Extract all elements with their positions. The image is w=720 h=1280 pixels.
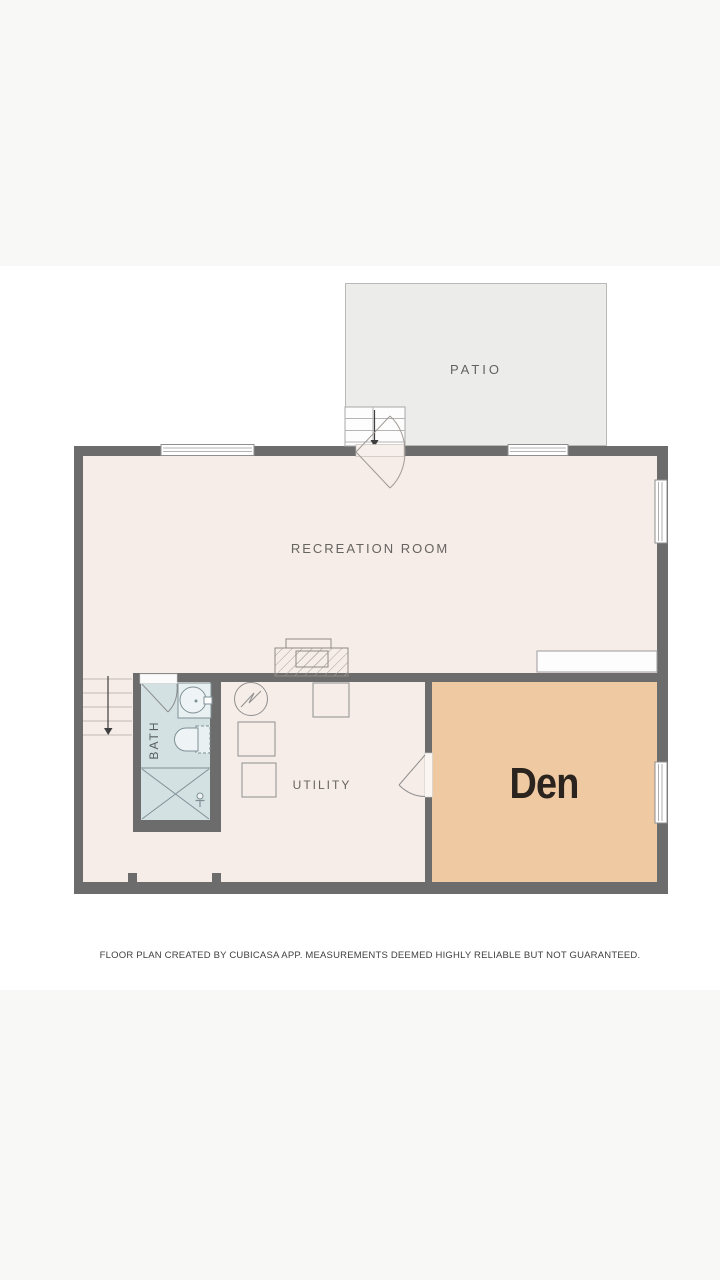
wall-stub (128, 873, 137, 883)
appliance-icon (238, 722, 275, 756)
toilet-icon (175, 726, 210, 753)
shower-valve-icon (196, 793, 205, 807)
exterior-stairs-icon (345, 407, 405, 447)
fireplace-icon (275, 639, 348, 676)
water-heater-icon (235, 683, 268, 716)
shower-icon (141, 768, 210, 819)
window-icon (655, 480, 667, 543)
patio-label: PATIO (345, 362, 607, 377)
recreation-room-label: RECREATION ROOM (83, 541, 657, 556)
footer-disclaimer: FLOOR PLAN CREATED BY CUBICASA APP. MEAS… (10, 950, 720, 961)
window-icon (161, 445, 254, 456)
fixture-layer (0, 0, 720, 1280)
interior-stairs-icon (83, 676, 132, 735)
wall-stub (212, 873, 221, 883)
counter-icon (537, 651, 657, 672)
utility-label: UTILITY (242, 778, 402, 792)
den-label: Den (448, 759, 641, 809)
down-arrow-icon (104, 676, 113, 735)
sink-icon (178, 683, 212, 718)
appliance-icon (313, 683, 349, 717)
window-icon (508, 445, 568, 456)
door-swing-icon (140, 674, 177, 712)
door-swing-icon (399, 753, 433, 797)
window-icon (655, 762, 667, 823)
